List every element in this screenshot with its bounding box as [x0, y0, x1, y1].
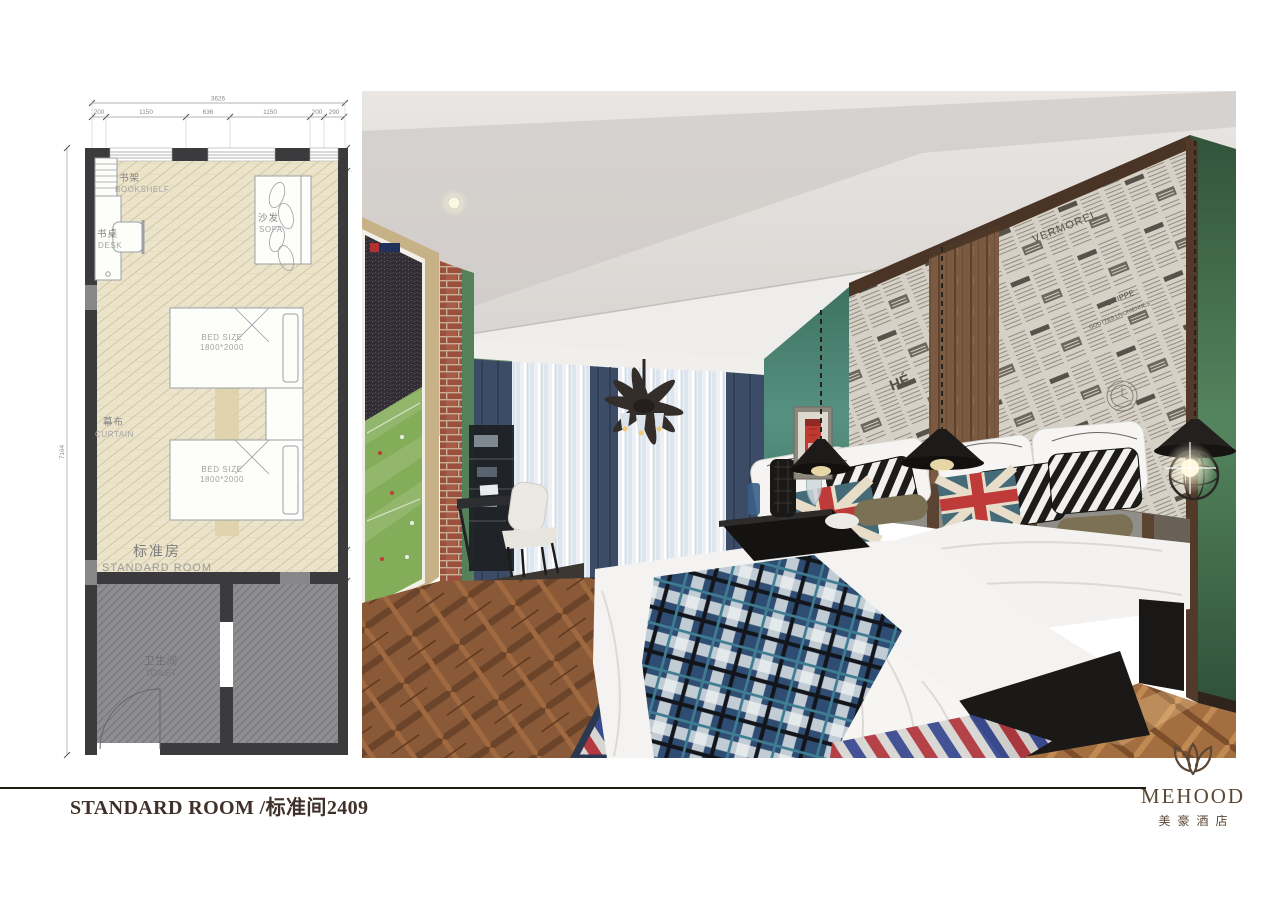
- svg-text:636: 636: [203, 109, 214, 116]
- nightstand-symbol: [266, 388, 303, 440]
- brand-name-cn: 美豪酒店: [1128, 812, 1258, 829]
- bed-platform-far: [1139, 599, 1184, 691]
- room-label-en: STANDARD ROOM: [102, 562, 212, 574]
- sofa-label-cn: 沙发: [258, 212, 279, 224]
- room-photo: VERMOREL GRIPPE GOUTTES LIVONIENNES HÉ: [362, 91, 1236, 758]
- page-title: STANDARD ROOM /标准间2409: [70, 791, 368, 820]
- curtain-label-en: CURTAIN: [95, 430, 134, 439]
- svg-text:1150: 1150: [263, 109, 277, 116]
- toilet-label-cn: 卫生间: [144, 654, 179, 667]
- room-label-cn: 标准房: [133, 543, 181, 559]
- zebra-pillow: [1048, 447, 1143, 515]
- brick-column: [440, 261, 462, 587]
- sofa-label-en: SOFA: [259, 225, 283, 234]
- svg-text:200: 200: [94, 109, 105, 116]
- bookshelf-label-cn: 书架: [119, 173, 140, 184]
- footer-rule: [0, 787, 1146, 789]
- brand-name: MEHOOD: [1128, 784, 1258, 809]
- svg-text:1800*2000: 1800*2000: [200, 475, 244, 484]
- toilet-floor-right: [233, 584, 338, 743]
- tulip-icon: [1167, 736, 1219, 778]
- tv-screen: [365, 235, 422, 609]
- white-bowl: [825, 513, 859, 529]
- brand-logo: MEHOOD 美豪酒店: [1128, 736, 1258, 829]
- svg-text:1800*2000: 1800*2000: [200, 343, 244, 352]
- blue-bottle: [748, 483, 760, 515]
- bed1-size-label: BED SIZE: [201, 333, 242, 342]
- svg-text:1150: 1150: [139, 109, 153, 116]
- svg-text:7164: 7164: [59, 444, 66, 459]
- desk-label-cn: 书桌: [97, 228, 118, 240]
- pocket-watch-illustration: [1107, 381, 1137, 411]
- presentation-sheet: 3626 200 1150 636 1150 200 290 7164 300 …: [0, 0, 1280, 905]
- bed2-size-label: BED SIZE: [201, 465, 242, 474]
- curtain-label-cn: 幕布: [103, 416, 124, 428]
- bookshelf-label-en: BOOKSHELF: [115, 185, 169, 194]
- desk-label-en: DESK: [98, 241, 122, 250]
- toilet-label-en: TOILET: [145, 668, 177, 678]
- svg-text:3626: 3626: [211, 96, 226, 103]
- floor-plan: 3626 200 1150 636 1150 200 290 7164 300 …: [57, 92, 357, 762]
- svg-text:290: 290: [329, 109, 340, 116]
- sheer-curtains: [512, 362, 726, 580]
- svg-text:200: 200: [312, 109, 323, 116]
